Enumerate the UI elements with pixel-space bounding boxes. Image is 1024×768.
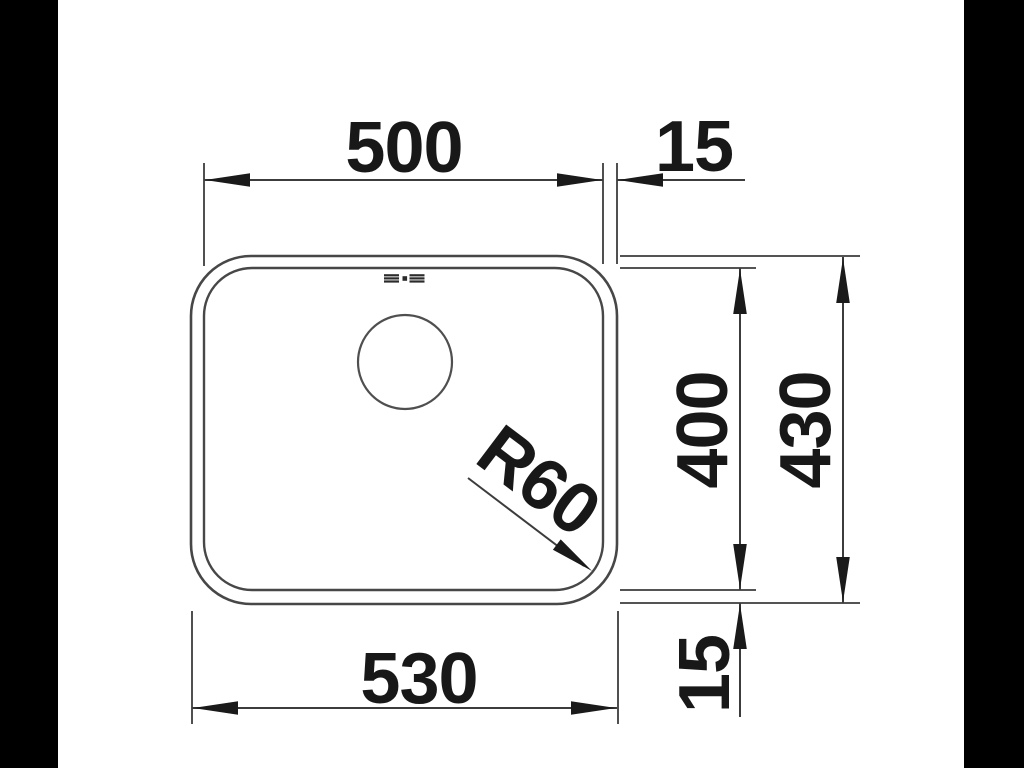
- dimension-label-inner-depth: 400: [663, 371, 743, 488]
- technical-drawing-page: 500 15 530 400 430 15 R60: [0, 0, 1024, 768]
- dimension-label-rim-offset-bottom: 15: [665, 635, 745, 713]
- overflow-icon: [384, 275, 425, 281]
- dimension-label-outer-width: 530: [360, 639, 477, 719]
- letterbox-right: [964, 0, 1024, 768]
- dimension-label-outer-depth: 430: [766, 371, 846, 488]
- drawing-background: [0, 0, 1024, 768]
- dimension-label-inner-width: 500: [345, 108, 462, 188]
- sink-technical-drawing: 500 15 530 400 430 15 R60: [0, 0, 1024, 768]
- letterbox-left: [0, 0, 58, 768]
- dimension-label-rim-offset-right: 15: [655, 107, 733, 187]
